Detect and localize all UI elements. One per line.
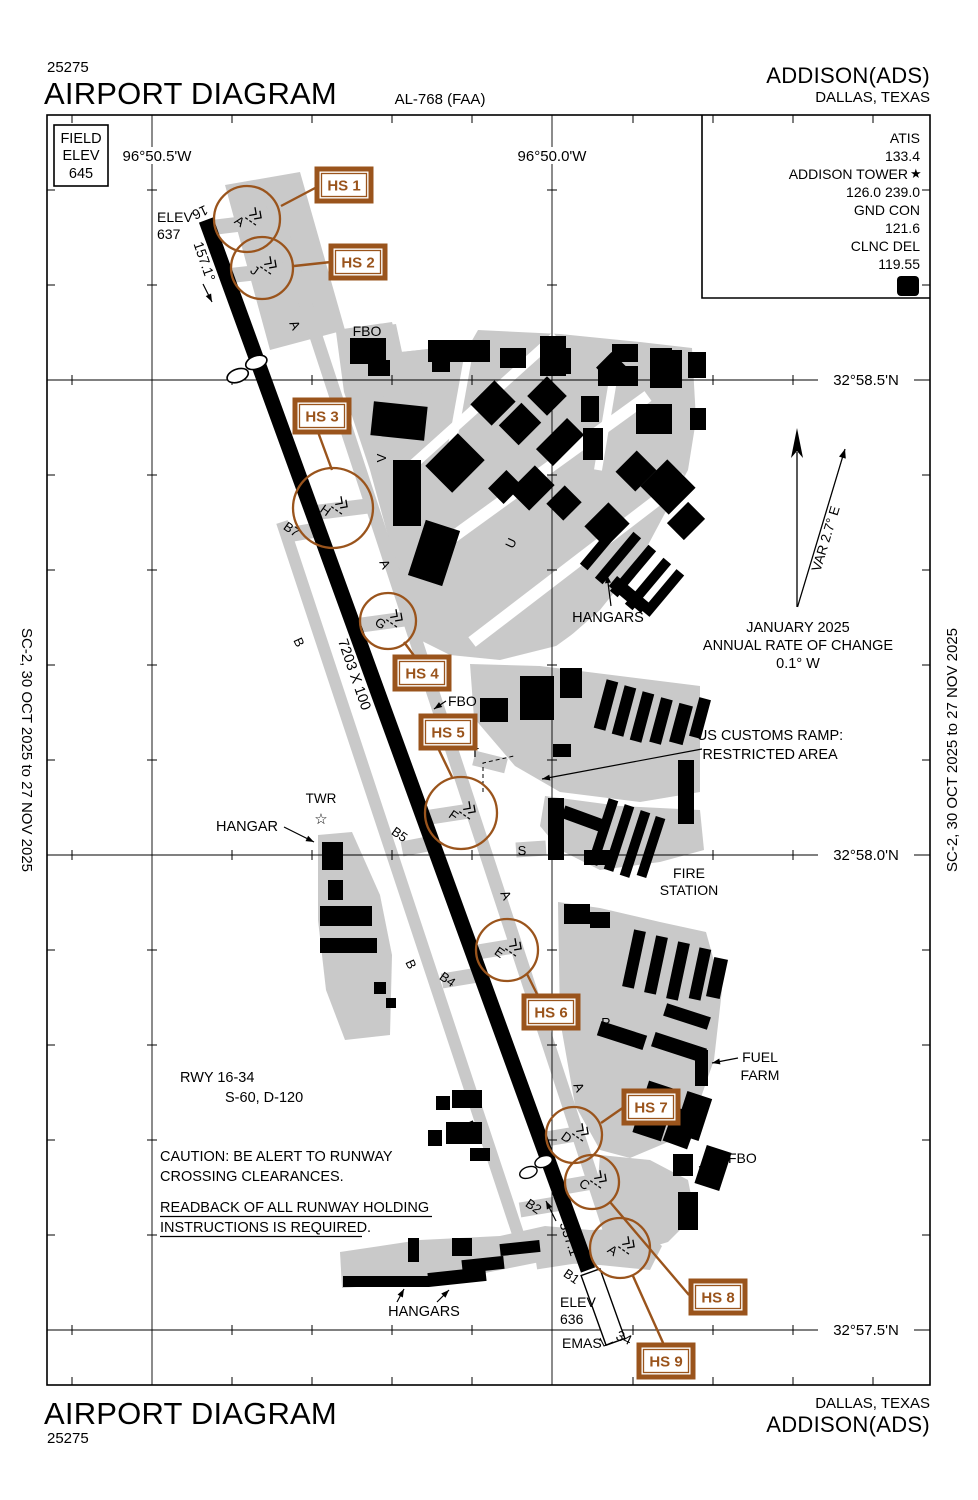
lat-label-1: 32°58.5'N [833, 372, 899, 389]
atis-freq: 133.4 [885, 148, 920, 164]
chart-code-bottom: 25275 [47, 1430, 89, 1447]
fbo-north-label: FBO [353, 323, 382, 339]
building [328, 880, 343, 900]
heading-157-arrow-head [206, 294, 212, 302]
building [322, 842, 343, 870]
building [673, 1154, 693, 1176]
fbo-south-label: FBO [728, 1150, 757, 1166]
building [695, 1050, 708, 1086]
hotspot-box-label: HS 3 [305, 409, 338, 426]
hotspot-box-label: HS 2 [341, 255, 374, 272]
fuel-farm-label-1: FUEL [742, 1049, 778, 1065]
customs-label-2: RESTRICTED AREA [702, 747, 838, 763]
magvar-rate-value: 0.1° W [776, 656, 820, 672]
runway-data-1: RWY 16-34 [180, 1070, 254, 1086]
airport-city-top: DALLAS, TEXAS [815, 89, 930, 106]
tower-label: ADDISON TOWER [789, 166, 908, 182]
hotspot-leader [633, 1276, 664, 1345]
building [690, 408, 706, 430]
elev-16-value: 637 [157, 226, 181, 242]
building [370, 401, 427, 440]
edge-note-left: SC-2, 30 OCT 2025 to 27 NOV 2025 [18, 628, 35, 872]
field-elev-label2: ELEV [62, 148, 99, 164]
building [560, 668, 582, 698]
fire-station-label-2: STATION [660, 882, 719, 898]
clnc-del-label: CLNC DEL [851, 238, 920, 254]
atis-label: ATIS [890, 130, 920, 146]
building [436, 1096, 450, 1110]
lon-label-2: 96°50.0'W [518, 148, 588, 165]
hotspot-box-label: HS 4 [405, 666, 439, 683]
tower-star-icon: ★ [910, 166, 922, 181]
airport-city-bottom: DALLAS, TEXAS [815, 1395, 930, 1412]
elev-34-value: 636 [560, 1311, 584, 1327]
caution-note-2: CROSSING CLEARANCES. [160, 1169, 344, 1185]
tower-star-symbol-icon: ☆ [314, 811, 327, 828]
customs-label-1: US CUSTOMS RAMP: [697, 728, 843, 744]
magvar-date: JANUARY 2025 [746, 620, 849, 636]
building [470, 1148, 490, 1161]
taxiway-connector [226, 268, 298, 276]
building [386, 998, 396, 1008]
building [694, 1145, 731, 1191]
hotspot-box-label: HS 5 [431, 725, 464, 742]
lat-label-3: 32°57.5'N [833, 1322, 899, 1339]
building [636, 404, 672, 434]
hangars-ne-label: HANGARS [572, 610, 644, 626]
building [408, 1238, 419, 1262]
hangar-west-label: HANGAR [216, 819, 278, 835]
runway-data-2: S-60, D-120 [225, 1090, 303, 1106]
fuel-farm-label-2: FARM [741, 1067, 780, 1083]
tower-freqs: 126.0 239.0 [846, 184, 920, 200]
building [428, 1130, 442, 1146]
hangars-sw-label: HANGARS [388, 1304, 460, 1320]
edge-note-right: SC-2, 30 OCT 2025 to 27 NOV 2025 [944, 628, 961, 872]
building [688, 352, 706, 378]
hotspot-box-label: HS 1 [327, 178, 360, 195]
building [553, 744, 571, 757]
hotspot-box-label: HS 7 [634, 1100, 667, 1117]
readback-note-2: INSTRUCTIONS IS REQUIRED. [160, 1220, 371, 1236]
field-elev-value: 645 [69, 166, 93, 182]
building [432, 362, 450, 372]
readback-note-1: READBACK OF ALL RUNWAY HOLDING [160, 1200, 429, 1216]
taxiway-label-B1: B1 [561, 1266, 583, 1287]
chart-ref: AL-768 (FAA) [395, 91, 486, 108]
hotspot-box-label: HS 9 [649, 1354, 682, 1371]
airport-name-bottom: ADDISON(ADS) [766, 1412, 930, 1437]
building [393, 460, 421, 526]
hangar-west-arrow-head [306, 836, 314, 842]
hangars-sw-arrow-head [398, 1289, 404, 1297]
building [428, 340, 490, 362]
airport-diagram-canvas: 25275 AIRPORT DIAGRAM AL-768 (FAA) ADDIS… [0, 0, 978, 1500]
building [374, 982, 386, 994]
building [564, 904, 590, 924]
twr-label: TWR [306, 791, 337, 806]
clnc-del-freq: 119.55 [878, 256, 920, 272]
building [320, 906, 372, 926]
taxiway-label-V: V [374, 453, 389, 462]
building [551, 348, 571, 374]
airport-name-top: ADDISON(ADS) [766, 63, 930, 88]
beacon-letter: D [903, 278, 913, 294]
magvar-rate-label: ANNUAL RATE OF CHANGE [703, 638, 893, 654]
building [520, 676, 554, 720]
building [368, 360, 390, 376]
magvar-label: VAR 2.7° E [809, 504, 843, 573]
taxiway-label-B: B [290, 635, 307, 649]
fire-station-label-1: FIRE [673, 865, 705, 881]
page-title-bottom: AIRPORT DIAGRAM [44, 1396, 337, 1431]
taxiway-label-B: B [402, 957, 419, 971]
chart-code-top: 25275 [47, 59, 89, 76]
taxiway-label-R: R [601, 1015, 610, 1030]
hotspot-leader [318, 432, 332, 470]
fbo-mid-label: FBO [448, 693, 477, 709]
lat-label-2: 32°58.0'N [833, 847, 899, 864]
taxiway-label-S: S [518, 843, 527, 858]
building [480, 698, 508, 722]
building [548, 798, 564, 860]
hotspot-box-label: HS 6 [534, 1005, 567, 1022]
building [584, 850, 614, 865]
caution-note-1: CAUTION: BE ALERT TO RUNWAY [160, 1149, 393, 1165]
building [500, 348, 526, 368]
hotspot-box-label: HS 8 [701, 1290, 734, 1307]
page-title: AIRPORT DIAGRAM [44, 76, 337, 111]
gnd-con-freq: 121.6 [885, 220, 920, 236]
building [678, 1192, 698, 1230]
building [320, 938, 377, 953]
field-elev-label1: FIELD [60, 131, 101, 147]
building [583, 428, 603, 460]
airport-diagram-page: 25275 AIRPORT DIAGRAM AL-768 (FAA) ADDIS… [0, 0, 978, 1500]
elev-34-label: ELEV [560, 1294, 596, 1310]
building [343, 1276, 429, 1287]
building [581, 396, 599, 422]
building [664, 350, 682, 388]
building [452, 1090, 482, 1108]
building [590, 912, 610, 928]
lon-label-1: 96°50.5'W [123, 148, 193, 165]
emas-label: EMAS [562, 1335, 602, 1351]
gnd-con-label: GND CON [854, 202, 920, 218]
building [678, 760, 694, 824]
elev-16-label: ELEV [157, 209, 193, 225]
building [452, 1238, 472, 1256]
